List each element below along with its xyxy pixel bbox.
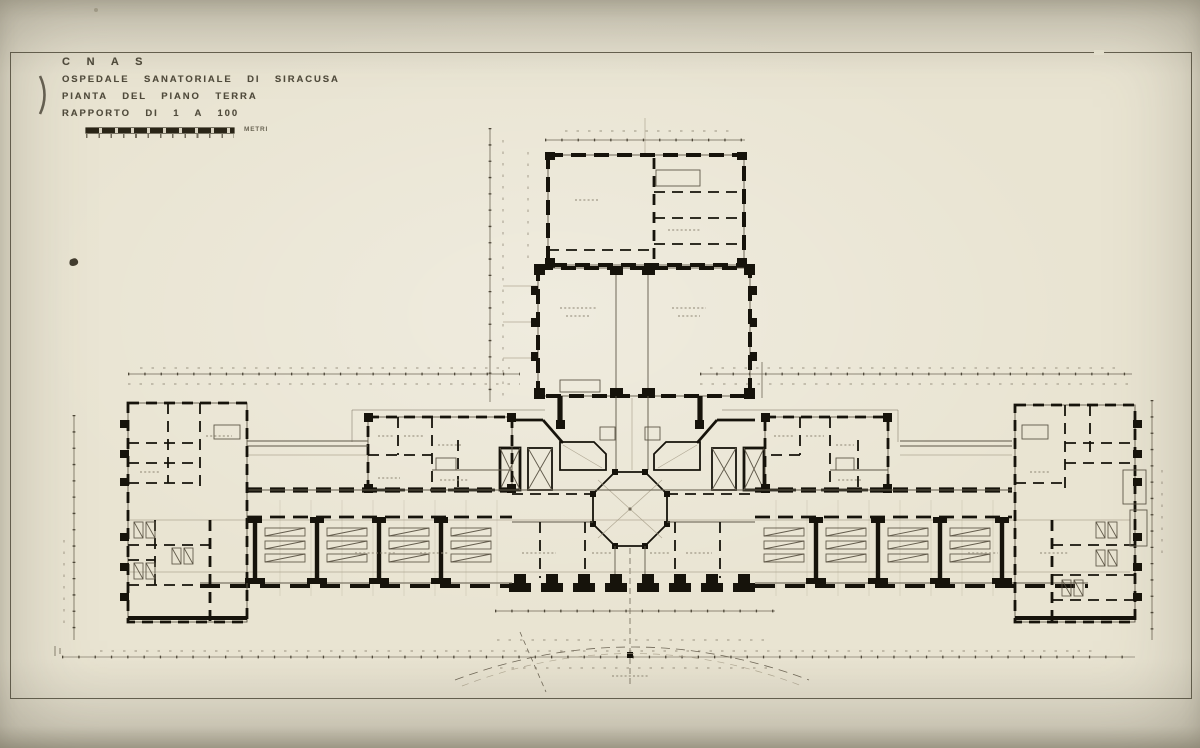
stamp-mark: [40, 76, 45, 114]
axis-marker: [627, 652, 633, 658]
pentagon-room-right: [654, 442, 700, 470]
plan-top-service-wing: [545, 152, 747, 268]
plan-refectory-block: [531, 264, 757, 470]
archival-photo-of-floor-plan: C N A S OSPEDALE SANATORIALE DI SIRACUSA…: [0, 0, 1200, 748]
ink-marks: [40, 8, 98, 656]
ink-blot: [69, 258, 78, 266]
plan-right-end-pavilion: [1015, 405, 1147, 622]
plan-right-office-block: [761, 413, 892, 493]
pentagon-room-left: [560, 442, 606, 470]
south-portico-piers: [509, 574, 755, 592]
stair-hatch: [645, 427, 660, 440]
stair-hatch: [600, 427, 615, 440]
floor-plan-drawing: [0, 0, 1200, 748]
plan-left-office-block: [364, 413, 516, 493]
stair-hatch: [656, 170, 700, 186]
construction-grid: [130, 118, 1130, 686]
plan-left-end-pavilion: [120, 403, 247, 622]
plan-entrance-drive: [455, 632, 809, 692]
